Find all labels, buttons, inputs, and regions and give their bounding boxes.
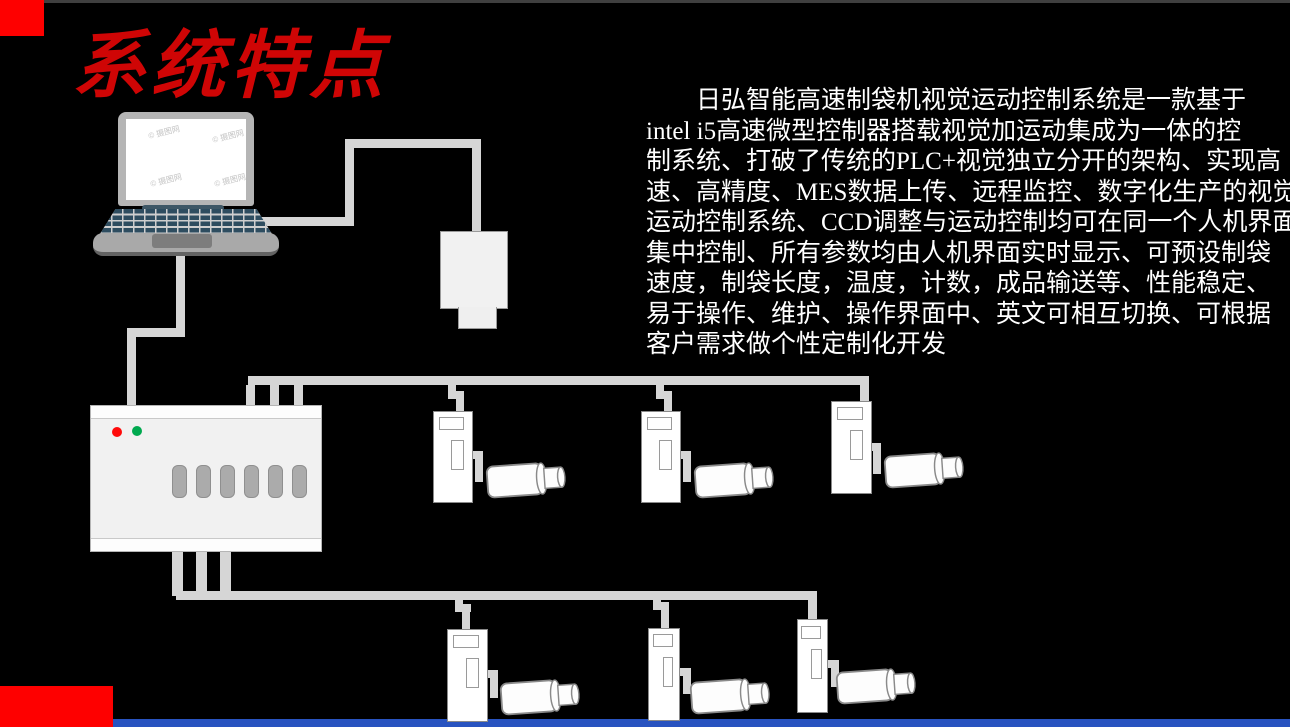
- servo-drive: [641, 411, 681, 503]
- top-left-red-block: [0, 0, 44, 36]
- description-line: 速、高精度、MES数据上传、远程监控、数字化生产的视觉: [646, 178, 1290, 209]
- footer-blue-bar: [113, 719, 1290, 727]
- cable-segment: [873, 443, 881, 474]
- cable-bus-1: [248, 376, 869, 385]
- cable-segment: [345, 139, 481, 148]
- cable-segment: [456, 391, 464, 413]
- power-led-green: [132, 426, 142, 436]
- drive-connector-slot: [811, 649, 821, 680]
- io-port: [172, 465, 187, 498]
- laptop-touchpad: [152, 234, 212, 248]
- watermark-text: © 摄图网: [211, 127, 245, 145]
- slide-root: 系统特点 日弘智能高速制袋机视觉运动控制系统是一款基于 intel i5高速微型…: [0, 0, 1290, 727]
- servo-motor: [499, 675, 585, 718]
- camera-body: [440, 231, 508, 309]
- cable-segment: [127, 328, 136, 408]
- cable-segment: [462, 604, 470, 630]
- drive-connector-slot: [850, 430, 863, 460]
- drive-connector-slot: [663, 657, 674, 687]
- cable-segment: [490, 670, 498, 698]
- description-line: 速度，制袋长度，温度，计数，成品输送等、性能稳定、: [646, 269, 1290, 300]
- servo-motor: [689, 674, 775, 717]
- servo-motor: [485, 458, 571, 501]
- description-line: 集中控制、所有参数均由人机界面实时显示、可预设制袋: [646, 239, 1290, 270]
- top-accent-line: [0, 0, 1290, 3]
- cable-segment: [258, 217, 354, 226]
- servo-motor: [693, 458, 779, 501]
- drive-indicator-window: [837, 407, 863, 420]
- page-title: 系统特点: [72, 6, 388, 113]
- controller-unit: [90, 405, 322, 552]
- watermark-text: © 摄图网: [213, 171, 246, 189]
- drive-indicator-window: [653, 634, 674, 647]
- cable-bus-2: [176, 591, 817, 600]
- cable-segment: [176, 253, 185, 337]
- io-port: [244, 465, 259, 498]
- controller-top-strip: [91, 406, 321, 419]
- servo-motor: [835, 664, 921, 707]
- io-port: [268, 465, 283, 498]
- servo-drive: [447, 629, 488, 722]
- laptop-screen: © 摄图网 © 摄图网 © 摄图网 © 摄图网: [126, 119, 246, 200]
- servo-drive: [831, 401, 872, 494]
- io-port: [220, 465, 235, 498]
- description-line: intel i5高速微型控制器搭载视觉加运动集成为一体的控: [646, 117, 1290, 148]
- servo-drive: [648, 628, 680, 721]
- description-line: 日弘智能高速制袋机视觉运动控制系统是一款基于: [646, 86, 1290, 117]
- drive-indicator-window: [647, 417, 673, 430]
- power-led-red: [112, 427, 122, 437]
- laptop-keyboard: [100, 209, 272, 234]
- camera-lens: [458, 307, 497, 329]
- controller-bottom-strip: [91, 538, 321, 551]
- drive-connector-slot: [466, 658, 479, 688]
- cable-segment: [683, 451, 691, 482]
- watermark-text: © 摄图网: [147, 123, 181, 141]
- cable-segment: [808, 591, 817, 620]
- io-port: [196, 465, 211, 498]
- bottom-left-red-block: [0, 686, 113, 727]
- cable-segment: [664, 391, 672, 413]
- io-port: [292, 465, 307, 498]
- description-paragraph: 日弘智能高速制袋机视觉运动控制系统是一款基于 intel i5高速微型控制器搭载…: [646, 86, 1290, 361]
- drive-indicator-window: [801, 626, 821, 639]
- drive-indicator-window: [453, 635, 479, 648]
- servo-drive: [433, 411, 473, 503]
- cable-segment: [345, 139, 354, 226]
- drive-connector-slot: [451, 440, 464, 470]
- watermark-text: © 摄图网: [149, 171, 183, 189]
- drive-connector-slot: [659, 440, 672, 470]
- description-line: 运动控制系统、CCD调整与运动控制均可在同一个人机界面: [646, 208, 1290, 239]
- description-line: 制系统、打破了传统的PLC+视觉独立分开的架构、实现高: [646, 147, 1290, 178]
- drive-indicator-window: [439, 417, 465, 430]
- servo-drive: [797, 619, 828, 713]
- description-line: 易于操作、维护、操作界面中、英文可相互切换、可根据: [646, 300, 1290, 331]
- cable-segment: [475, 451, 483, 482]
- cable-segment: [472, 139, 481, 233]
- cable-segment: [860, 376, 869, 403]
- cable-segment: [661, 602, 669, 629]
- description-line: 客户需求做个性定制化开发: [646, 330, 1290, 361]
- servo-motor: [883, 448, 969, 491]
